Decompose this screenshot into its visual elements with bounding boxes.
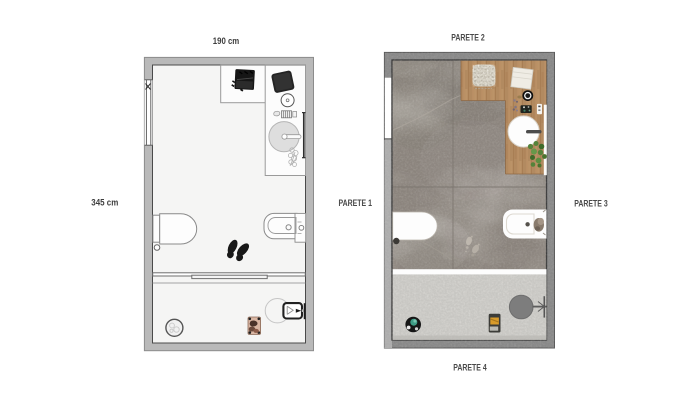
svg-text:190 cm: 190 cm xyxy=(213,36,240,46)
svg-text:PARETE 4: PARETE 4 xyxy=(453,363,487,373)
svg-text:PARETE 2: PARETE 2 xyxy=(451,33,485,43)
svg-text:PARETE 1: PARETE 1 xyxy=(338,198,372,208)
svg-text:PARETE 3: PARETE 3 xyxy=(574,199,608,209)
svg-text:345 cm: 345 cm xyxy=(91,198,118,208)
